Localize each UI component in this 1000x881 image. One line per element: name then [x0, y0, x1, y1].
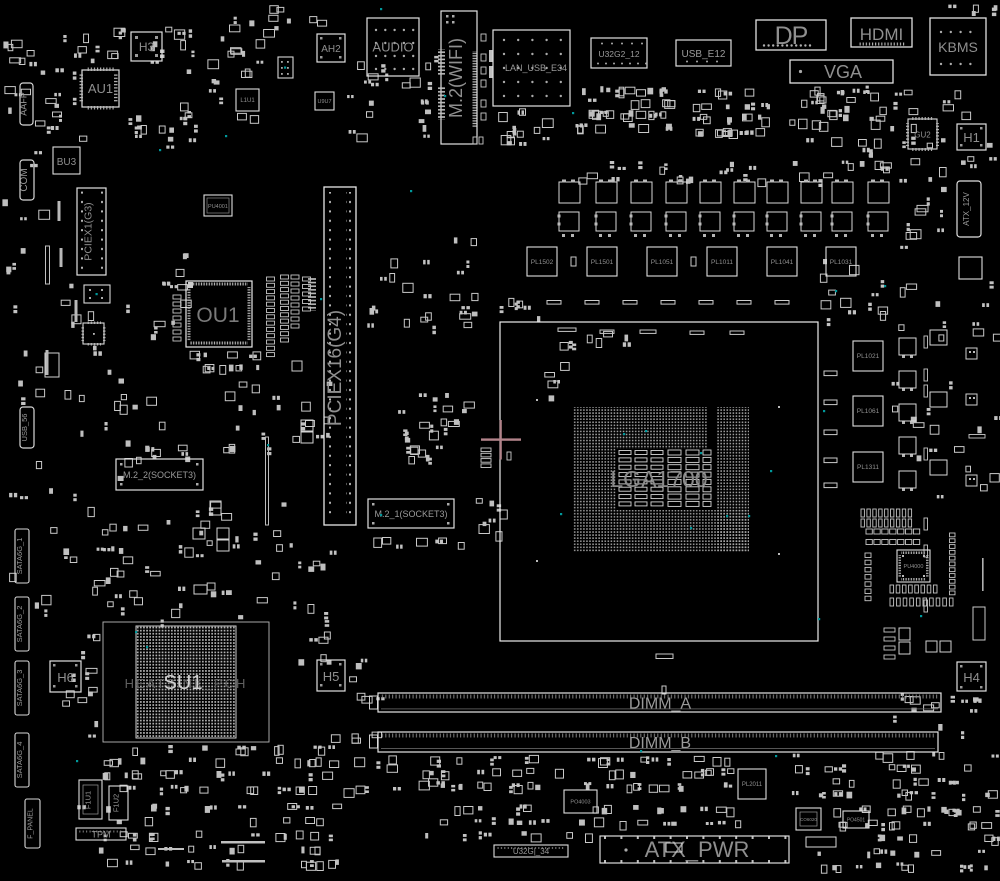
- svg-text:CO6020: CO6020: [800, 817, 817, 822]
- svg-text:PU4000: PU4000: [904, 564, 924, 570]
- svg-text:SU1: SU1: [164, 672, 203, 694]
- svg-text:COM: COM: [19, 168, 30, 191]
- svg-text:USB_56: USB_56: [20, 414, 29, 442]
- svg-text:SATA6G_2: SATA6G_2: [15, 606, 24, 643]
- svg-text:F1U2: F1U2: [112, 794, 121, 812]
- svg-text:F_PANEL: F_PANEL: [28, 808, 35, 839]
- svg-text:AAFP: AAFP: [19, 92, 29, 116]
- svg-text:USB_E12: USB_E12: [682, 49, 726, 60]
- svg-text:BU3: BU3: [57, 157, 77, 168]
- svg-text:PO4501: PO4501: [847, 818, 866, 824]
- svg-text:AU1: AU1: [88, 81, 113, 96]
- svg-text:PL1021: PL1021: [857, 353, 880, 360]
- svg-text:U9U7: U9U7: [317, 99, 331, 105]
- svg-text:PL1061: PL1061: [857, 408, 880, 415]
- svg-text:AUDIO: AUDIO: [372, 40, 413, 55]
- svg-text:H6: H6: [57, 670, 74, 685]
- svg-text:GU2: GU2: [914, 131, 931, 140]
- svg-text:ATX_PWR: ATX_PWR: [645, 837, 750, 862]
- svg-text:PL1011: PL1011: [711, 259, 733, 266]
- svg-text:L1U1: L1U1: [240, 98, 255, 104]
- svg-text:PO4003: PO4003: [570, 800, 590, 806]
- svg-text:HDMI: HDMI: [860, 25, 903, 44]
- svg-text:H3: H3: [139, 40, 155, 54]
- svg-text:PL1502: PL1502: [531, 259, 554, 266]
- svg-text:PL2011: PL2011: [742, 782, 763, 788]
- svg-text:PL1031: PL1031: [830, 259, 853, 266]
- svg-text:PL1051: PL1051: [651, 259, 674, 266]
- svg-text:PL1311: PL1311: [857, 464, 879, 471]
- svg-text:PL1041: PL1041: [771, 259, 794, 266]
- svg-text:DIMM_A: DIMM_A: [629, 696, 692, 713]
- svg-text:KBMS: KBMS: [938, 39, 978, 55]
- svg-text:OU1: OU1: [196, 304, 239, 327]
- svg-text:LAN_USB_E34: LAN_USB_E34: [505, 63, 567, 73]
- svg-text:SATA6G_4: SATA6G_4: [15, 742, 24, 779]
- svg-text:H4: H4: [963, 670, 980, 685]
- svg-text:M.2_2(SOCKET3): M.2_2(SOCKET3): [123, 470, 196, 480]
- svg-text:U32G2_12: U32G2_12: [598, 49, 639, 59]
- svg-text:M.2(WIFI): M.2(WIFI): [446, 38, 466, 118]
- svg-text:H5: H5: [323, 669, 340, 684]
- svg-text:DIMM_B: DIMM_B: [629, 735, 691, 752]
- svg-text:PL1501: PL1501: [591, 259, 614, 266]
- svg-text:SATA6G_1: SATA6G_1: [15, 538, 24, 575]
- svg-text:PCIEX16(G4): PCIEX16(G4): [325, 310, 346, 426]
- svg-text:VGA: VGA: [824, 62, 862, 82]
- svg-text:SATA6G_3: SATA6G_3: [15, 670, 24, 707]
- svg-text:PCIEX1(G3): PCIEX1(G3): [83, 202, 95, 260]
- svg-text:LGA1700: LGA1700: [610, 466, 707, 492]
- svg-text:H1: H1: [963, 130, 980, 145]
- svg-text:AH2: AH2: [321, 44, 341, 55]
- svg-text:ATX_12V: ATX_12V: [962, 192, 971, 226]
- svg-text:M.2_1(SOCKET3): M.2_1(SOCKET3): [374, 509, 447, 519]
- svg-text:PU4001: PU4001: [208, 204, 228, 210]
- svg-text:F1U1: F1U1: [84, 791, 93, 809]
